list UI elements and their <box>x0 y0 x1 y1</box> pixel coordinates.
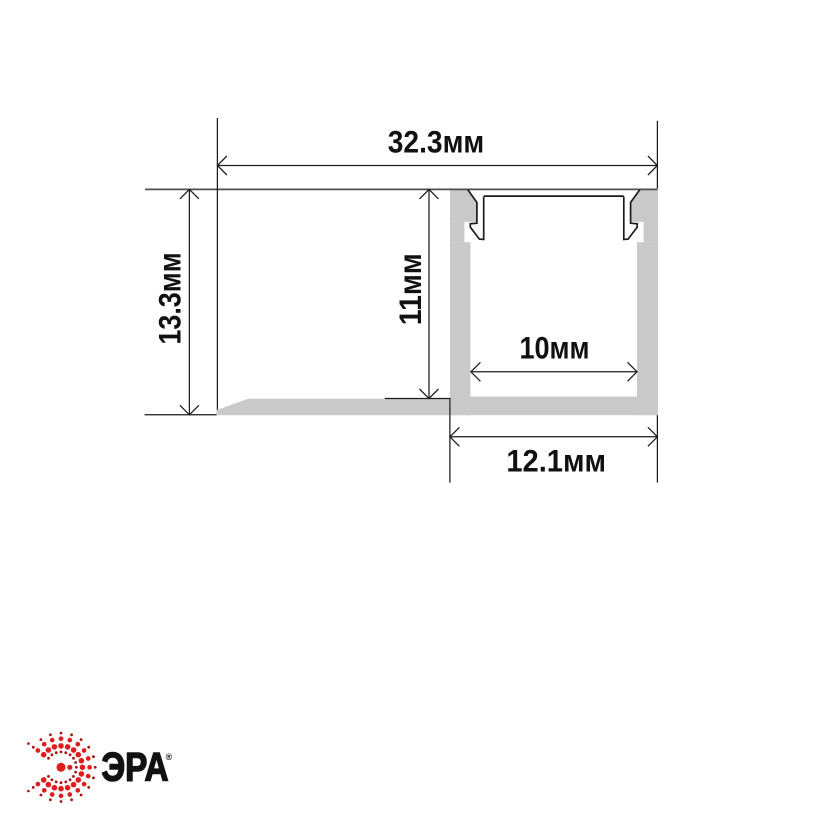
svg-text:12.1мм: 12.1мм <box>506 443 606 479</box>
svg-text:ЭРА: ЭРА <box>102 746 169 790</box>
svg-text:32.3мм: 32.3мм <box>388 123 485 159</box>
svg-text:10мм: 10мм <box>519 329 589 365</box>
svg-text:11мм: 11мм <box>392 253 428 325</box>
svg-text:13.3мм: 13.3мм <box>152 252 188 344</box>
svg-text:®: ® <box>166 752 173 762</box>
